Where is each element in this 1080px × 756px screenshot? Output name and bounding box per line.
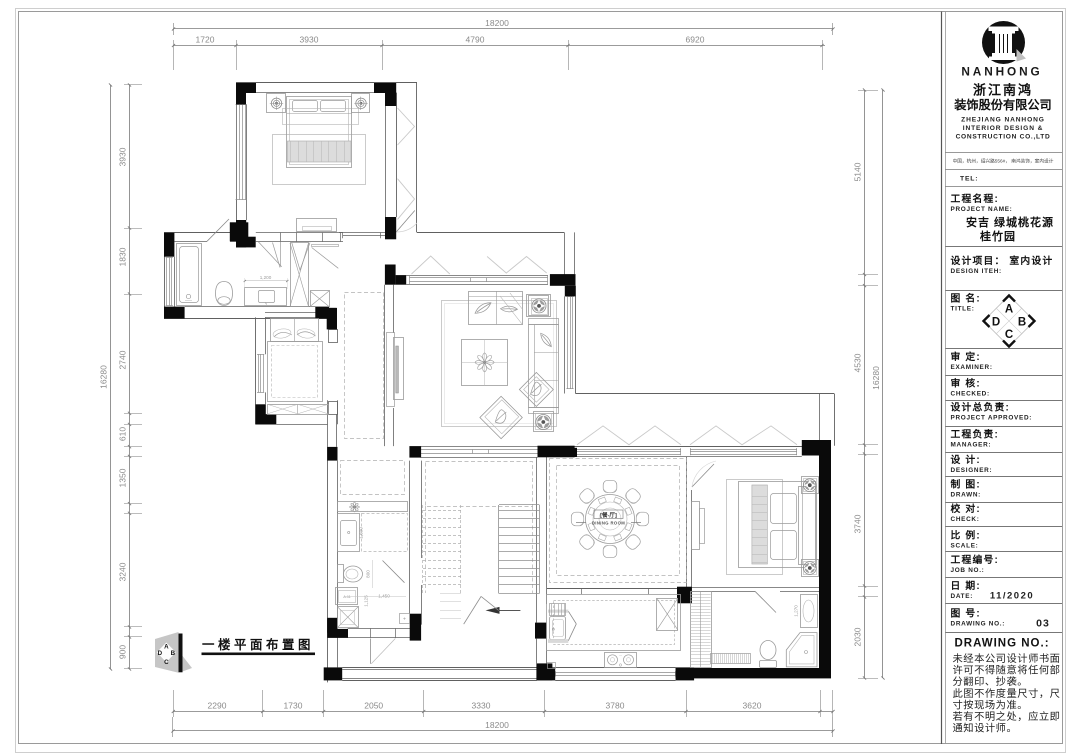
svg-text:C: C — [164, 659, 169, 666]
svg-text:2740: 2740 — [118, 350, 128, 369]
svg-text:制 图:: 制 图: — [951, 478, 981, 491]
svg-text:审 核:: 审 核: — [951, 377, 981, 390]
svg-text:DESIGNER:: DESIGNER: — [951, 467, 993, 474]
svg-text:B: B — [1018, 317, 1026, 329]
svg-text:图 号:: 图 号: — [951, 608, 981, 620]
svg-text:此图不作度量尺寸，尺: 此图不作度量尺寸，尺 — [953, 687, 1061, 700]
svg-text:5140: 5140 — [853, 162, 863, 181]
svg-text:JOB NO.:: JOB NO.: — [951, 567, 985, 574]
svg-text:1730: 1730 — [284, 701, 303, 711]
svg-text:1,270: 1,270 — [794, 605, 799, 617]
svg-text:通知设计师。: 通知设计师。 — [953, 722, 1018, 735]
svg-text:900: 900 — [118, 645, 128, 659]
svg-text:工程负责:: 工程负责: — [951, 428, 999, 441]
svg-text:CHECK:: CHECK: — [951, 516, 980, 523]
svg-text:D: D — [158, 650, 163, 657]
svg-text:DATE:: DATE: — [951, 593, 974, 600]
svg-text:桂竹园: 桂竹园 — [979, 229, 1016, 243]
svg-text:校 对:: 校 对: — [951, 502, 981, 515]
svg-text:03: 03 — [1036, 618, 1050, 630]
svg-text:3930: 3930 — [118, 147, 128, 166]
svg-text:1,450: 1,450 — [378, 594, 390, 599]
svg-text:[餐-厅]: [餐-厅] — [600, 511, 617, 519]
svg-text:分翻印、抄袭。: 分翻印、抄袭。 — [953, 675, 1029, 688]
svg-text:11/2020: 11/2020 — [990, 591, 1034, 602]
svg-text:18200: 18200 — [485, 18, 509, 28]
svg-text:4530: 4530 — [853, 353, 863, 372]
svg-text:工程名程:: 工程名程: — [951, 192, 999, 205]
svg-text:ZHEJIANG NANHONG: ZHEJIANG NANHONG — [961, 117, 1045, 124]
svg-text:4790: 4790 — [466, 35, 485, 45]
svg-text:610: 610 — [118, 427, 128, 441]
svg-text:6920: 6920 — [686, 35, 705, 45]
svg-text:CHECKED:: CHECKED: — [951, 391, 990, 398]
svg-text:中国，杭州，绍兴路556#， 南鸿装饰，室内设计: 中国，杭州，绍兴路556#， 南鸿装饰，室内设计 — [953, 158, 1054, 165]
svg-text:设计总负责:: 设计总负责: — [951, 401, 1010, 414]
svg-text:设计项目： 室内设计: 设计项目： 室内设计 — [951, 254, 1054, 267]
svg-text:16280: 16280 — [99, 365, 109, 389]
svg-text:1830: 1830 — [118, 247, 128, 266]
svg-text:一楼平面布置图: 一楼平面布置图 — [202, 637, 314, 652]
svg-text:设 计:: 设 计: — [951, 453, 981, 466]
svg-text:DRAWING NO.:: DRAWING NO.: — [954, 638, 1049, 650]
svg-text:INTERIOR DESIGN &: INTERIOR DESIGN & — [963, 125, 1044, 132]
svg-text:16280: 16280 — [871, 366, 881, 390]
svg-text:···: ··· — [619, 653, 623, 658]
svg-text:A.11: A.11 — [343, 595, 351, 599]
svg-text:工程编号:: 工程编号: — [951, 553, 999, 566]
svg-text:A: A — [1005, 304, 1013, 316]
svg-text:浙江南鸿: 浙江南鸿 — [973, 83, 1033, 98]
svg-text:A: A — [164, 644, 169, 651]
svg-text:3330: 3330 — [472, 701, 491, 711]
svg-text:3620: 3620 — [743, 701, 762, 711]
svg-text:许可不得随意将任何部: 许可不得随意将任何部 — [953, 664, 1061, 677]
svg-text:TITLE:: TITLE: — [951, 306, 975, 313]
svg-text:3240: 3240 — [118, 562, 128, 581]
svg-text:D: D — [992, 317, 1000, 329]
svg-text:+: + — [403, 617, 406, 623]
svg-text:2290: 2290 — [208, 701, 227, 711]
svg-text:EXAMINER:: EXAMINER: — [951, 364, 993, 371]
svg-text:PROJECT NAME:: PROJECT NAME: — [951, 206, 1013, 213]
svg-text:18200: 18200 — [485, 720, 509, 730]
svg-text:1,200: 1,200 — [260, 275, 272, 280]
svg-text:DRAWING NO.:: DRAWING NO.: — [951, 621, 1006, 628]
svg-text:CONSTRUCTION CO.,LTD: CONSTRUCTION CO.,LTD — [956, 134, 1051, 141]
svg-text:日 期:: 日 期: — [951, 579, 981, 592]
svg-text:DRAWN:: DRAWN: — [951, 492, 981, 499]
svg-text:C: C — [1005, 329, 1013, 341]
svg-text:2050: 2050 — [364, 701, 383, 711]
svg-text:2030: 2030 — [853, 627, 863, 646]
svg-text:3740: 3740 — [853, 514, 863, 533]
svg-text:1350: 1350 — [118, 468, 128, 487]
svg-text:SCALE:: SCALE: — [951, 543, 979, 550]
svg-text:装饰股份有限公司: 装饰股份有限公司 — [953, 97, 1052, 112]
svg-text:3930: 3930 — [300, 35, 319, 45]
svg-text:若有不明之处，应立即: 若有不明之处，应立即 — [953, 710, 1061, 723]
svg-text:800: 800 — [366, 570, 371, 578]
svg-text:比 例:: 比 例: — [951, 529, 981, 542]
svg-text:PROJECT APPROVED:: PROJECT APPROVED: — [951, 415, 1033, 422]
svg-text:1720: 1720 — [196, 35, 215, 45]
svg-text:DINING ROOM: DINING ROOM — [592, 521, 625, 526]
svg-text:MANAGER:: MANAGER: — [951, 442, 992, 449]
svg-text:安吉 绿城桃花源: 安吉 绿城桃花源 — [966, 215, 1054, 229]
svg-text:审 定:: 审 定: — [951, 350, 981, 363]
svg-text:TEL:: TEL: — [960, 176, 978, 183]
svg-text:图 名:: 图 名: — [951, 292, 981, 305]
svg-text:NANHONG: NANHONG — [961, 65, 1042, 79]
svg-text:3780: 3780 — [606, 701, 625, 711]
svg-text:寸按现场为准。: 寸按现场为准。 — [953, 698, 1029, 711]
svg-text:B: B — [171, 650, 176, 657]
svg-text:DESIGN ITEH:: DESIGN ITEH: — [951, 268, 1002, 275]
svg-text:未经本公司设计师书面: 未经本公司设计师书面 — [953, 652, 1061, 665]
svg-text:1,600: 1,600 — [359, 527, 364, 539]
